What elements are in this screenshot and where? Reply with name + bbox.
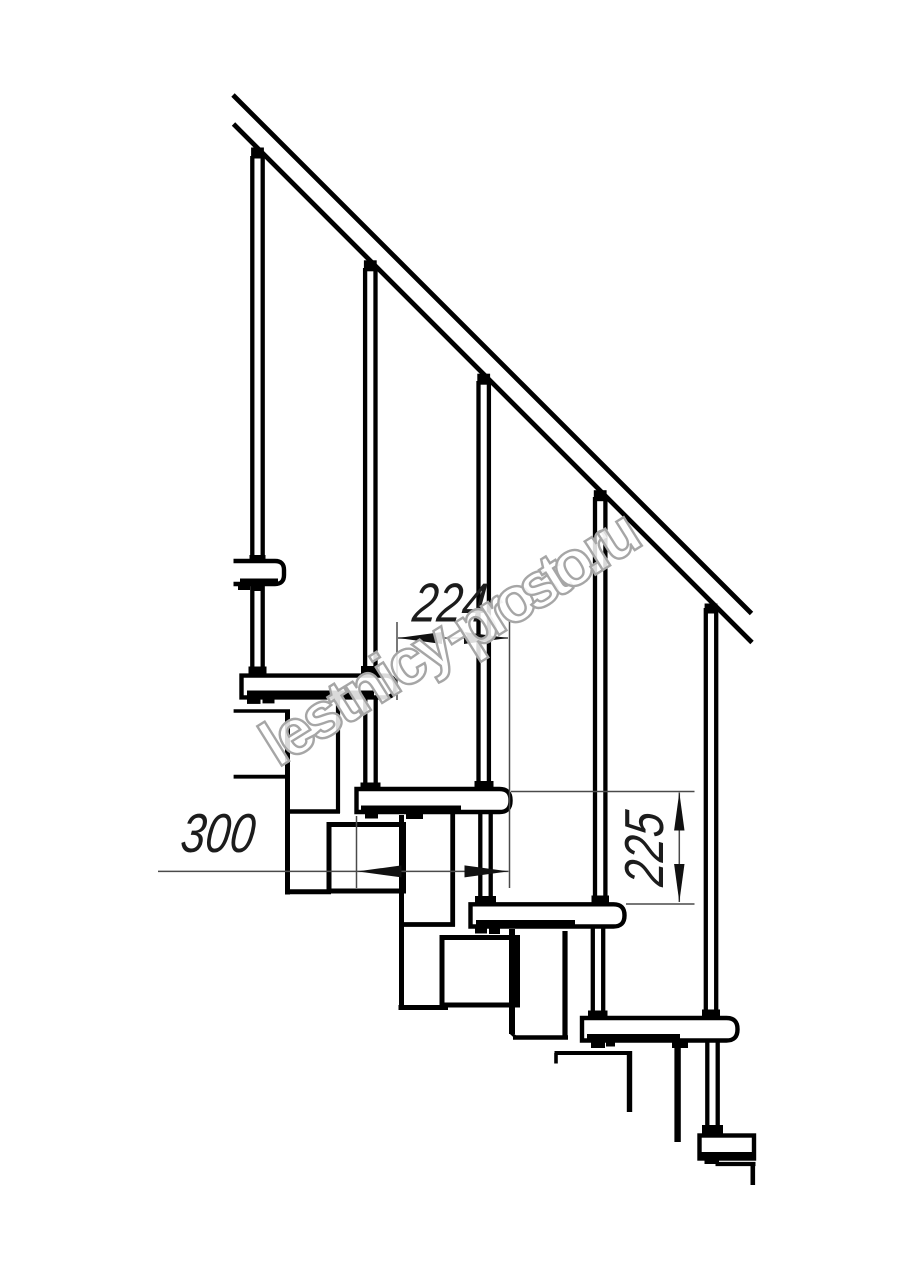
svg-text:225: 225 xyxy=(614,808,676,890)
svg-text:300: 300 xyxy=(178,803,259,865)
